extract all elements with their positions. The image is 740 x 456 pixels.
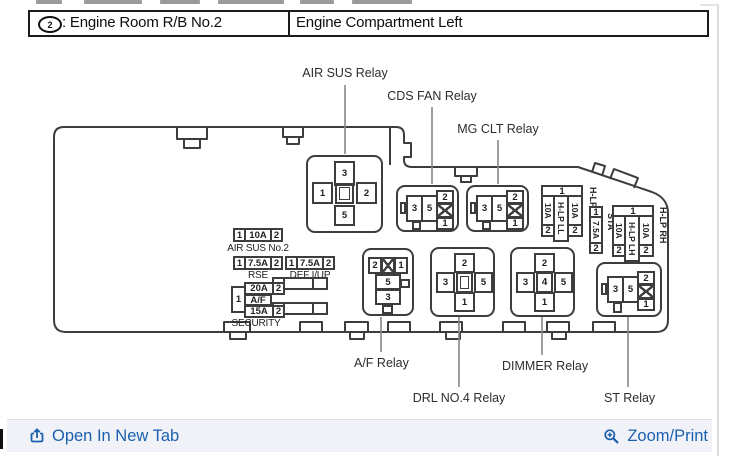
st-relay: 3 5 2 1: [596, 262, 662, 317]
page-top-corner-line: [700, 4, 719, 6]
dimmer-pin-top: 2: [534, 253, 555, 273]
page-right-edge-line: [717, 4, 719, 456]
label-cds-fan-relay: CDS FAN Relay: [382, 89, 482, 103]
drl-center-socket: [456, 272, 473, 293]
st-x-socket: [637, 284, 655, 299]
cds-fan-x-socket: [436, 203, 454, 218]
label-st-relay: ST Relay: [604, 391, 655, 405]
st-pin-2: 2: [637, 271, 655, 285]
dimmer-pin-left: 3: [516, 272, 535, 293]
label-mg-clt-relay: MG CLT Relay: [448, 122, 548, 136]
drl-pin-left: 3: [436, 272, 455, 293]
mg-clt-pin-1: 1: [506, 217, 524, 230]
label-af-relay: A/F Relay: [354, 356, 409, 370]
af-pin-2: 2: [368, 257, 382, 274]
mg-clt-x-socket: [506, 203, 524, 218]
mg-clt-relay: 3 5 2 1: [466, 185, 529, 232]
drl-pin-bottom: 1: [454, 292, 475, 312]
cds-fan-relay: 3 5 2 1: [396, 185, 459, 232]
st-foot: [613, 302, 622, 313]
af-pin-5: 5: [375, 274, 401, 290]
label-air-sus-relay: AIR SUS Relay: [295, 66, 395, 80]
open-in-new-tab-icon: [29, 428, 45, 444]
af-foot: [382, 305, 393, 314]
cds-fan-pin-1: 1: [436, 217, 454, 230]
drl-pin-top: 2: [454, 253, 475, 273]
zoom-print-link[interactable]: Zoom/Print: [603, 427, 708, 446]
dimmer-center-socket: 4: [536, 272, 553, 293]
footer-bar: Open In New Tab Zoom/Print: [7, 419, 712, 452]
page: { "header": { "badge": "2", "title_left"…: [0, 0, 740, 456]
air-sus-pin-right: 2: [356, 182, 377, 204]
dimmer-relay: 2 3 5 1 4: [510, 247, 575, 317]
air-sus-pin-left: 1: [312, 182, 333, 204]
dimmer-pin-bottom: 1: [534, 292, 555, 312]
label-drl-no4-relay: DRL NO.4 Relay: [409, 391, 509, 405]
mg-clt-pin-2: 2: [506, 190, 524, 204]
cds-fan-foot: [412, 221, 421, 230]
drl-no4-relay: 2 3 5 1: [430, 247, 495, 317]
st-pin-1: 1: [637, 298, 655, 311]
air-sus-relay: 3 1 2 5: [306, 155, 383, 233]
af-nub: [400, 279, 410, 288]
drl-pin-right: 5: [474, 272, 493, 293]
mg-clt-foot: [482, 221, 491, 230]
zoom-icon: [603, 428, 620, 445]
air-sus-center-socket: [335, 183, 354, 204]
cds-fan-pin-2: 2: [436, 190, 454, 204]
af-relay: 2 1 5 3: [362, 248, 414, 316]
air-sus-pin-bottom: 5: [334, 205, 355, 226]
open-in-new-tab-link[interactable]: Open In New Tab: [29, 427, 179, 446]
zoom-print-label: Zoom/Print: [627, 427, 708, 446]
open-in-new-tab-label: Open In New Tab: [52, 427, 179, 446]
af-pin-1: 1: [394, 257, 408, 274]
dimmer-pin-right: 5: [554, 272, 573, 293]
af-pin-3: 3: [375, 289, 401, 305]
hlp-rh-side-label: H-LP RH: [655, 207, 668, 265]
label-dimmer-relay: DIMMER Relay: [502, 359, 588, 373]
af-x-socket: [381, 257, 395, 274]
left-edge-mark: [0, 429, 3, 449]
